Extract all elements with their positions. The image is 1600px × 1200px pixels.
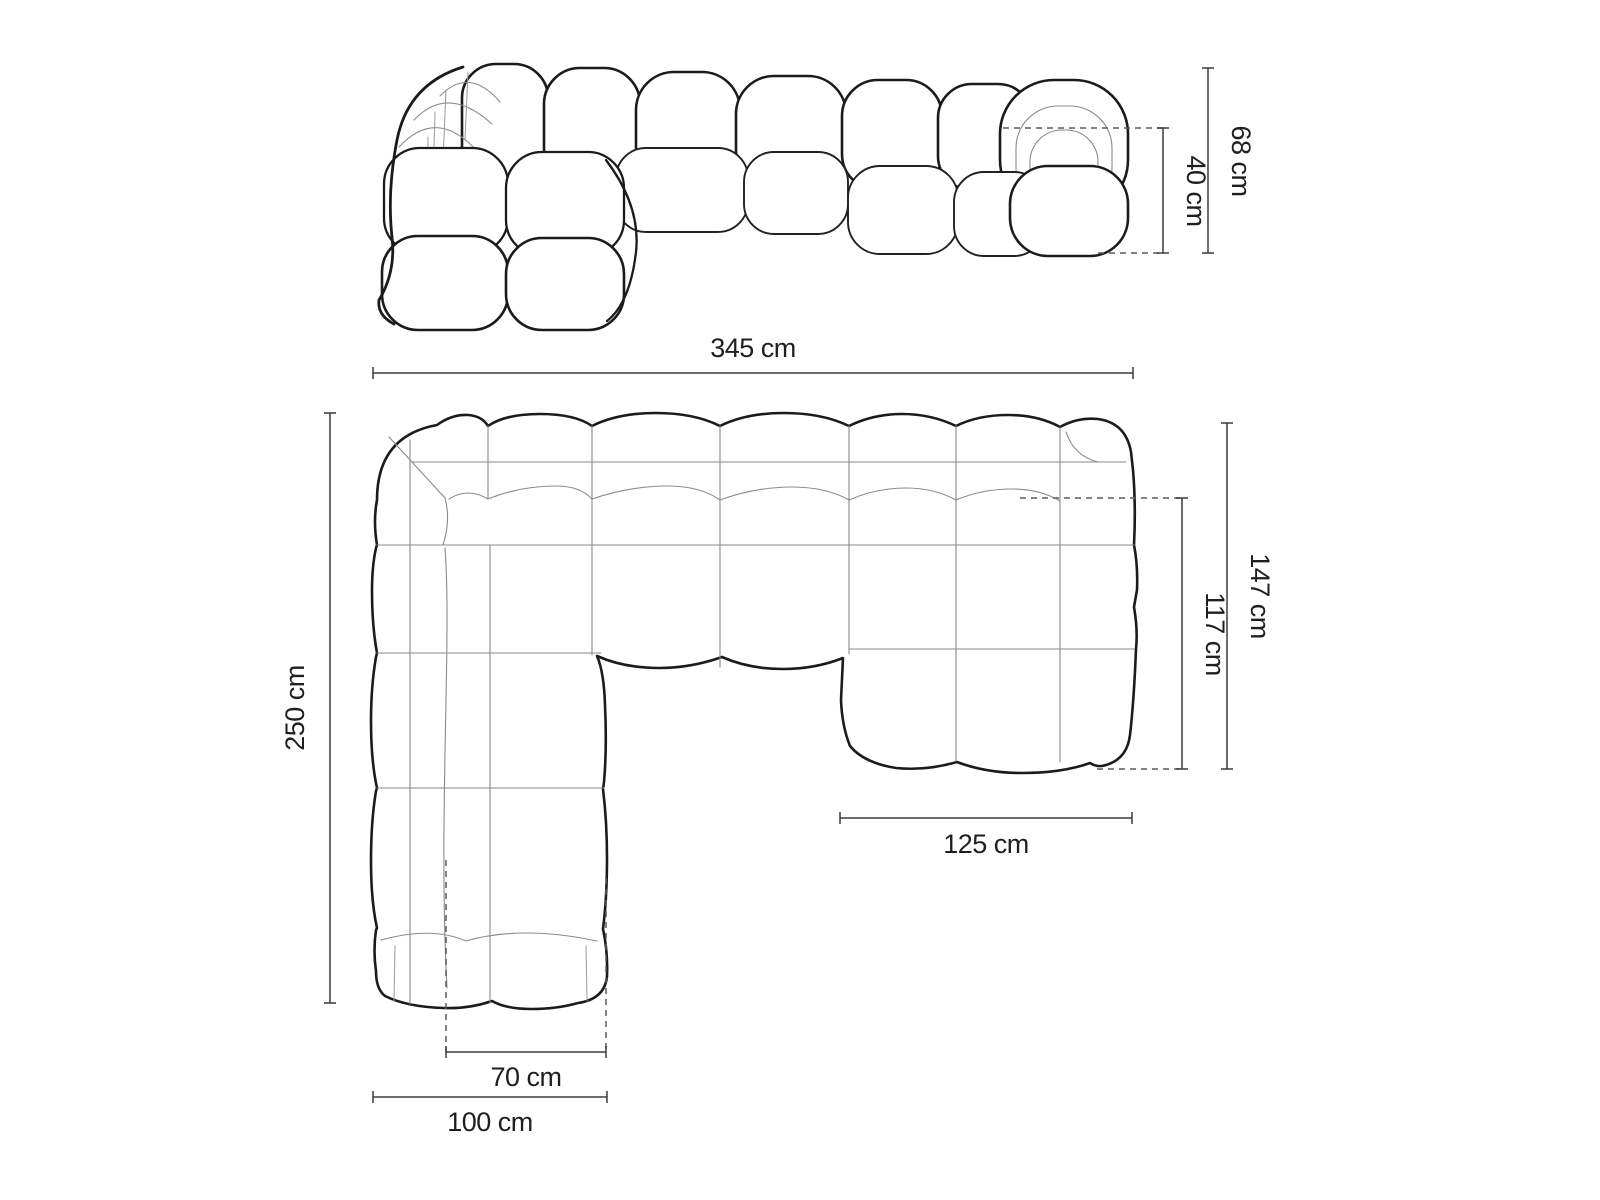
- dim-line-250: [324, 413, 336, 1003]
- dim-line-40: [1157, 128, 1169, 253]
- dim-line-70: [446, 1046, 606, 1058]
- dim-label-seat-column-width: 70 cm: [490, 1062, 561, 1092]
- seat-cushion: [616, 148, 748, 232]
- dim-label-total-width: 345 cm: [710, 333, 796, 363]
- diagram-svg: 345 cm 68 cm 40 cm 250 cm 147 cm 117 cm …: [0, 0, 1600, 1200]
- dim-line-125: [840, 812, 1132, 824]
- plan-outline: [371, 413, 1137, 1009]
- dim-line-345: [373, 367, 1133, 379]
- dim-label-chaise-clear-depth: 117 cm: [1200, 592, 1230, 676]
- dim-label-chaise-total-depth: 147 cm: [1245, 553, 1275, 639]
- dim-label-chaise-width: 125 cm: [943, 829, 1029, 859]
- right-armrest-front: [1010, 166, 1128, 256]
- dim-label-seat-height: 40 cm: [1181, 155, 1211, 226]
- front-view-drawing: [379, 64, 1128, 330]
- dim-line-100: [373, 1091, 607, 1103]
- seat-cushion: [848, 166, 958, 254]
- seat-cushion: [744, 152, 848, 234]
- chaise-cushion: [382, 236, 508, 330]
- dim-label-total-height: 68 cm: [1226, 125, 1256, 196]
- top-view-drawing: [371, 413, 1137, 1009]
- chaise-cushion: [506, 238, 624, 330]
- dim-label-total-depth: 250 cm: [280, 665, 310, 751]
- dim-line-117: [1176, 498, 1188, 769]
- dim-label-left-section-width: 100 cm: [447, 1107, 533, 1137]
- sofa-dimension-diagram: 345 cm 68 cm 40 cm 250 cm 147 cm 117 cm …: [0, 0, 1600, 1200]
